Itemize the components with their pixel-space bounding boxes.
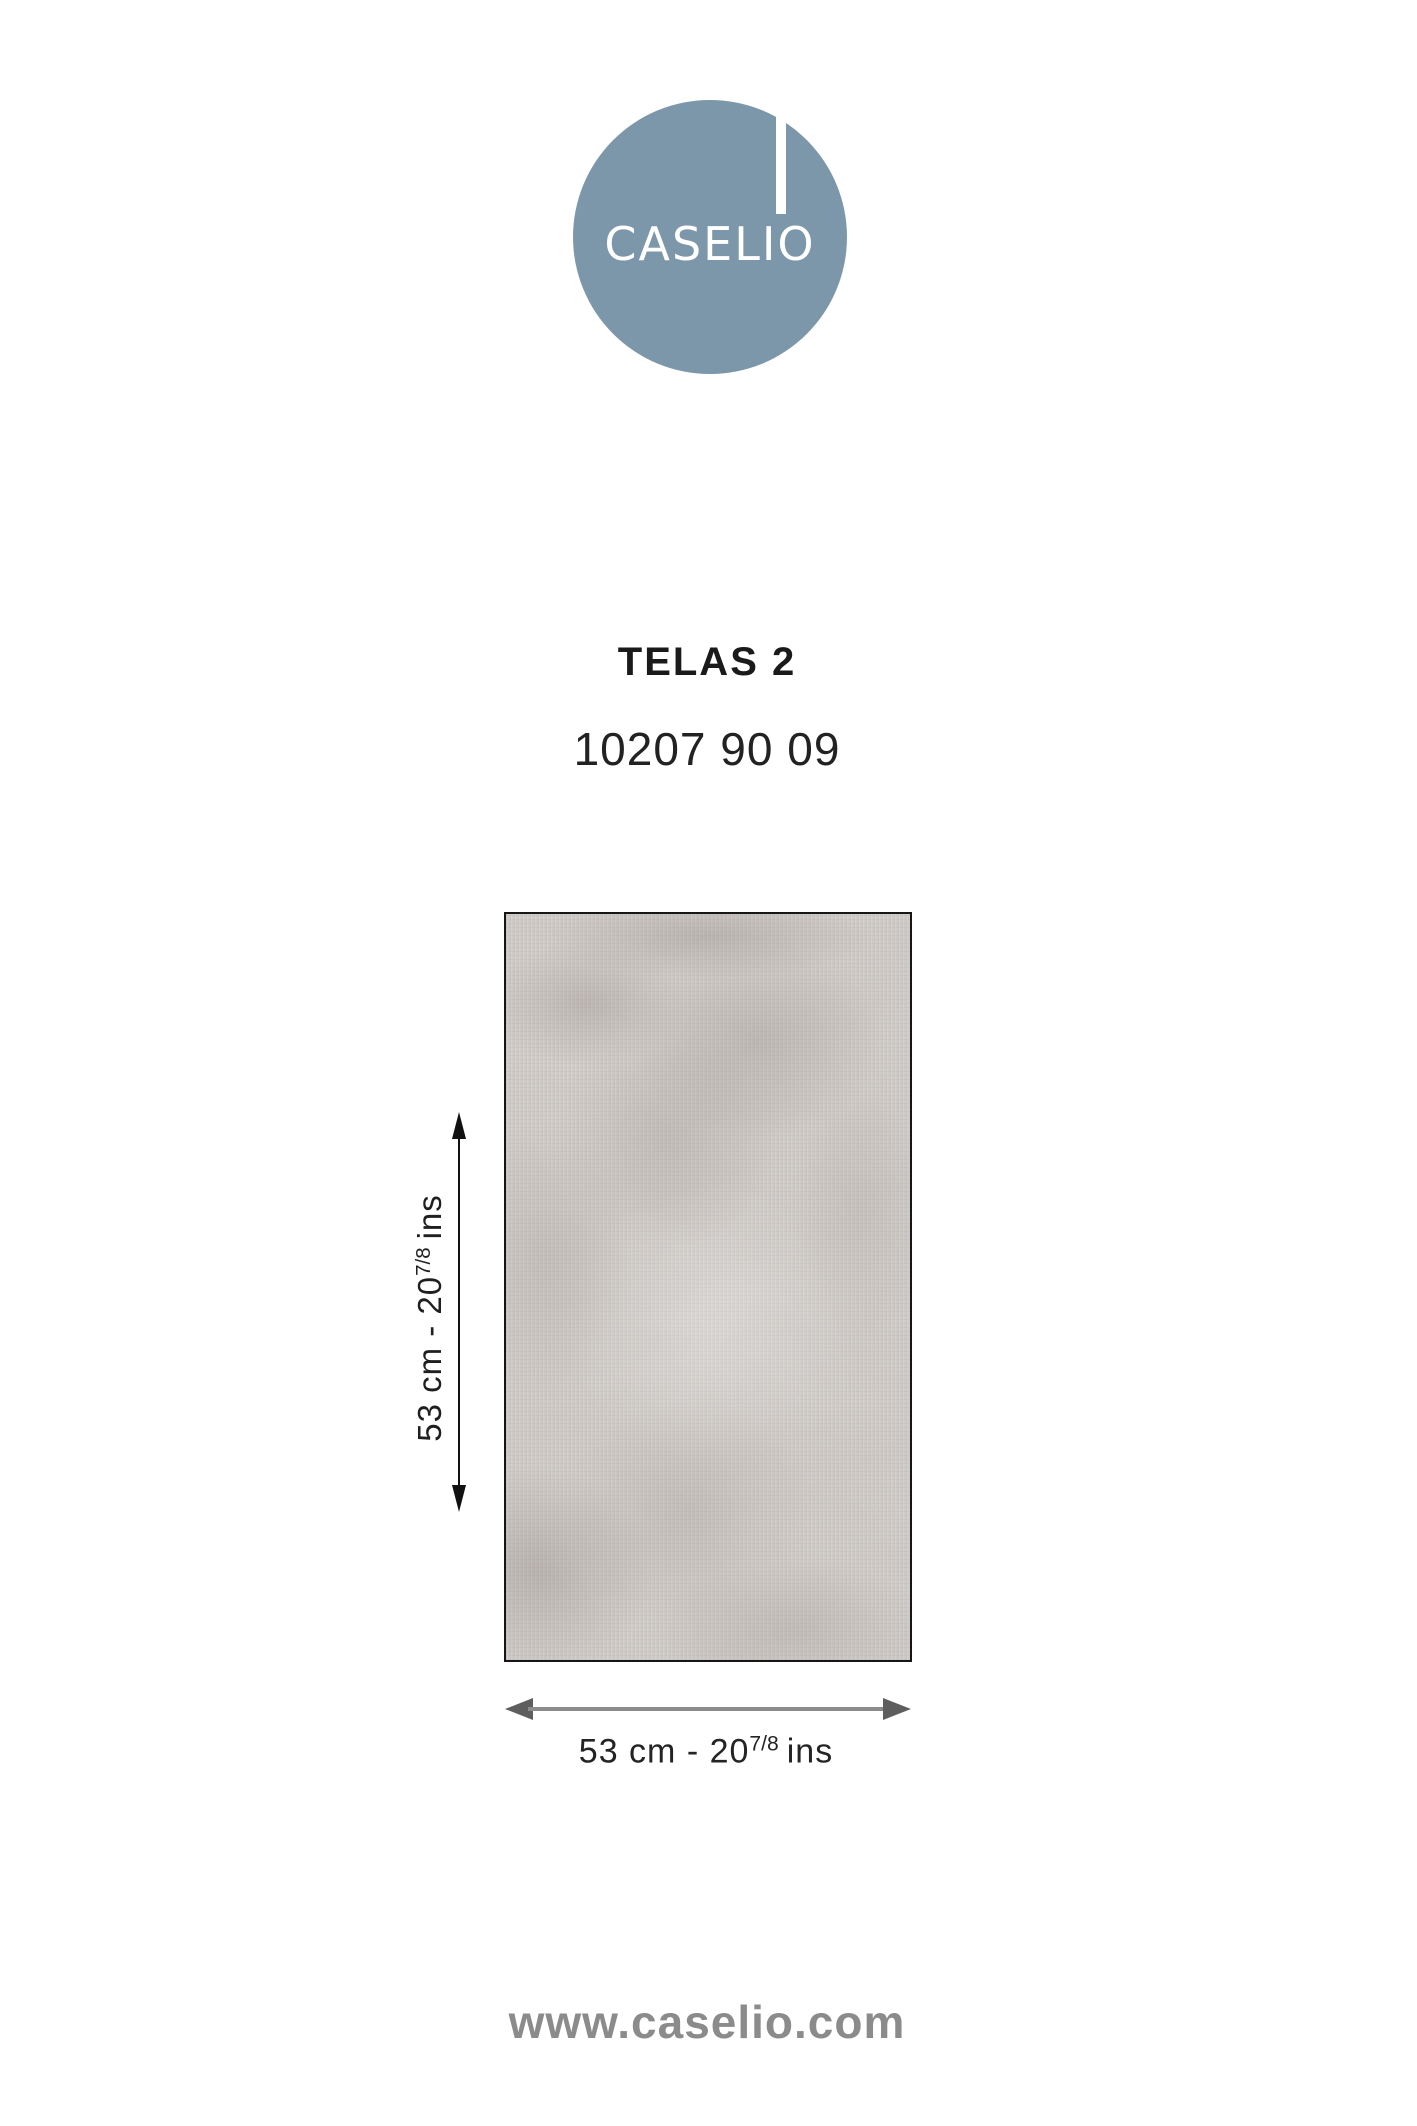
swatch-texture [506,914,910,1660]
width-dimension-line [528,1707,886,1711]
product-spec-sheet: CASELIO TELAS 2 10207 90 09 53 cm - 207/… [0,0,1417,2126]
height-unit: ins [411,1194,448,1239]
caselio-logo: CASELIO [573,100,847,374]
height-dimension-line [458,1136,460,1488]
width-dimension-label: 53 cm - 207/8ins [579,1733,833,1772]
up-arrowhead-icon [452,1112,466,1139]
width-fraction: 7/8 [749,1733,778,1756]
width-value: 53 cm - 20 [579,1733,750,1771]
height-fraction: 7/8 [412,1247,435,1275]
wallpaper-swatch [504,912,912,1662]
logo-wordmark: CASELIO [604,217,815,271]
right-arrowhead-icon [883,1698,911,1720]
height-dimension-label: 53 cm - 207/8ins [411,1194,449,1442]
website-url: www.caselio.com [509,1995,906,2049]
down-arrowhead-icon [452,1485,466,1512]
width-unit: ins [787,1733,833,1771]
product-name: TELAS 2 [618,640,796,685]
logo-vertical-bar-icon [776,112,786,214]
product-reference: 10207 90 09 [574,722,841,776]
height-value: 53 cm - 20 [411,1276,448,1442]
